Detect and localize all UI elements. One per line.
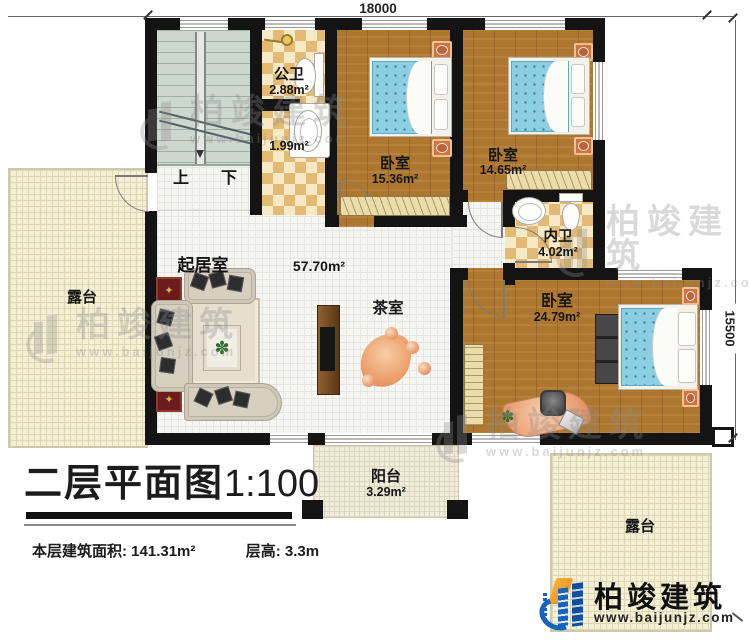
inner-bath-toilet-tank	[559, 193, 583, 202]
window-bedroom-b-east	[593, 62, 605, 140]
sliding-door-balcony	[325, 433, 432, 445]
nightstand-icon	[682, 287, 699, 305]
dimension-tick	[702, 10, 712, 20]
room-area-balcony: 3.29m²	[355, 486, 417, 500]
wall	[145, 18, 157, 173]
room-area-wash-area: 1.99m²	[258, 140, 320, 154]
brand-logo: 柏竣建筑 www.baijunjz.com	[541, 574, 746, 634]
dimension-top-label: 18000	[350, 1, 406, 16]
stair-direction-arrow	[196, 150, 204, 158]
dimension-line-right	[735, 20, 736, 440]
wall	[700, 268, 712, 310]
room-area-public-bath: 2.88m²	[258, 84, 320, 98]
room-label-public-bath: 公卫	[258, 67, 320, 84]
title-underline-thick	[26, 512, 292, 519]
pillow	[571, 64, 585, 94]
cabinet-ornament: ✦	[164, 393, 173, 406]
wall	[700, 385, 712, 445]
room-label-living-room: 起居室	[160, 257, 246, 276]
window-master-bedroom-east	[700, 310, 712, 385]
stairs-down-label: 下	[217, 170, 241, 188]
title-underline-thin	[24, 524, 296, 526]
room-area-living-room: 57.70m²	[284, 259, 354, 274]
room-area-bedroom-b: 14.65m²	[468, 164, 538, 178]
nightstand-icon	[432, 139, 452, 157]
desk-chair-icon	[540, 390, 566, 416]
plan-title-text: 二层平面图	[24, 463, 224, 505]
table-plant-icon: ✽	[214, 338, 229, 359]
window-stairwell	[180, 18, 228, 30]
nightstand-icon	[574, 137, 593, 155]
terrace-left-floor	[8, 168, 148, 448]
room-label-terrace-left: 露台	[55, 290, 109, 307]
pillow	[678, 349, 696, 383]
wall	[450, 268, 463, 445]
tea-stool-icon	[418, 362, 431, 375]
coffee-table-icon: ✽	[203, 325, 241, 371]
floor-area-value: 141.31m²	[131, 543, 195, 560]
bed-bench-icon	[595, 314, 619, 384]
window-bedroom-b	[485, 18, 565, 30]
room-label-master-bedroom: 卧室	[520, 293, 594, 311]
wall	[315, 18, 362, 30]
room-area-bedroom-a: 15.36m²	[360, 173, 430, 187]
window-bedroom-a	[362, 18, 427, 30]
tv-icon	[320, 327, 335, 371]
balcony-post-right	[447, 500, 468, 519]
tea-stool-icon	[385, 327, 398, 340]
floor-stats: 本层建筑面积: 141.31m² 层高: 3.3m	[32, 540, 319, 561]
room-label-bedroom-a: 卧室	[360, 156, 430, 173]
wall	[145, 433, 270, 445]
tea-stool-icon	[406, 341, 419, 354]
room-area-inner-bath: 4.02m²	[528, 246, 588, 260]
bed-blanket	[652, 308, 677, 386]
brand-logo-url: www.baijunjz.com	[594, 610, 735, 625]
watermark-name: 柏竣建筑	[606, 205, 750, 273]
window-public-bath	[265, 18, 315, 30]
room-label-inner-bath: 内卫	[528, 230, 588, 246]
sofa-pillow	[159, 357, 176, 374]
stair-railing	[195, 32, 206, 164]
tea-stool-icon	[362, 374, 375, 387]
pillow	[678, 312, 696, 346]
wall	[593, 140, 605, 280]
shower-knob-icon	[281, 34, 293, 46]
window-master-bedroom-north	[618, 268, 682, 280]
room-label-terrace-right: 露台	[613, 519, 667, 536]
wardrobe-icon	[340, 196, 450, 216]
floor-area-label: 本层建筑面积:	[32, 543, 127, 560]
floor-height-label: 层高:	[246, 543, 281, 560]
nightstand-icon	[682, 389, 699, 407]
dimension-line-top	[8, 16, 734, 17]
desk-plant-icon: ✽	[501, 410, 514, 426]
floor-plan-canvas: ✽ ✦ ✦ ✽ 柏竣建筑 www.baijunjz.com 柏竣建筑 www.b…	[0, 0, 750, 643]
bed-blanket	[406, 61, 431, 134]
wall	[250, 18, 262, 215]
window-living-room	[270, 433, 308, 445]
dimension-tick	[728, 13, 738, 23]
stairs-up-label: 上	[169, 170, 193, 188]
wall	[593, 18, 605, 62]
floor-height-value: 3.3m	[285, 543, 319, 560]
wardrobe-icon	[464, 344, 484, 426]
sofa-pillow	[233, 391, 251, 409]
inner-bath-basin-inner	[518, 203, 542, 221]
wall	[452, 190, 468, 202]
pillow	[571, 97, 585, 127]
room-area-master-bedroom: 24.79m²	[520, 311, 594, 325]
pillow	[434, 64, 448, 95]
bed-blanket	[543, 61, 568, 132]
cabinet-ornament: ✦	[164, 284, 173, 297]
wall	[540, 433, 712, 445]
wall	[505, 268, 618, 280]
wall	[374, 215, 467, 227]
pillow	[434, 99, 448, 130]
plan-title-scale: 1:100	[224, 463, 319, 505]
wall	[325, 215, 339, 227]
room-label-tea-room: 茶室	[364, 300, 412, 317]
dimension-right-label: 15500	[723, 304, 738, 354]
stair-landing-line	[157, 210, 250, 211]
brand-logo-icon	[541, 576, 591, 632]
sofa-pillow	[227, 275, 244, 292]
wall	[308, 433, 325, 445]
plan-title: 二层平面图1:100	[24, 452, 319, 507]
room-label-balcony: 阳台	[355, 469, 417, 486]
